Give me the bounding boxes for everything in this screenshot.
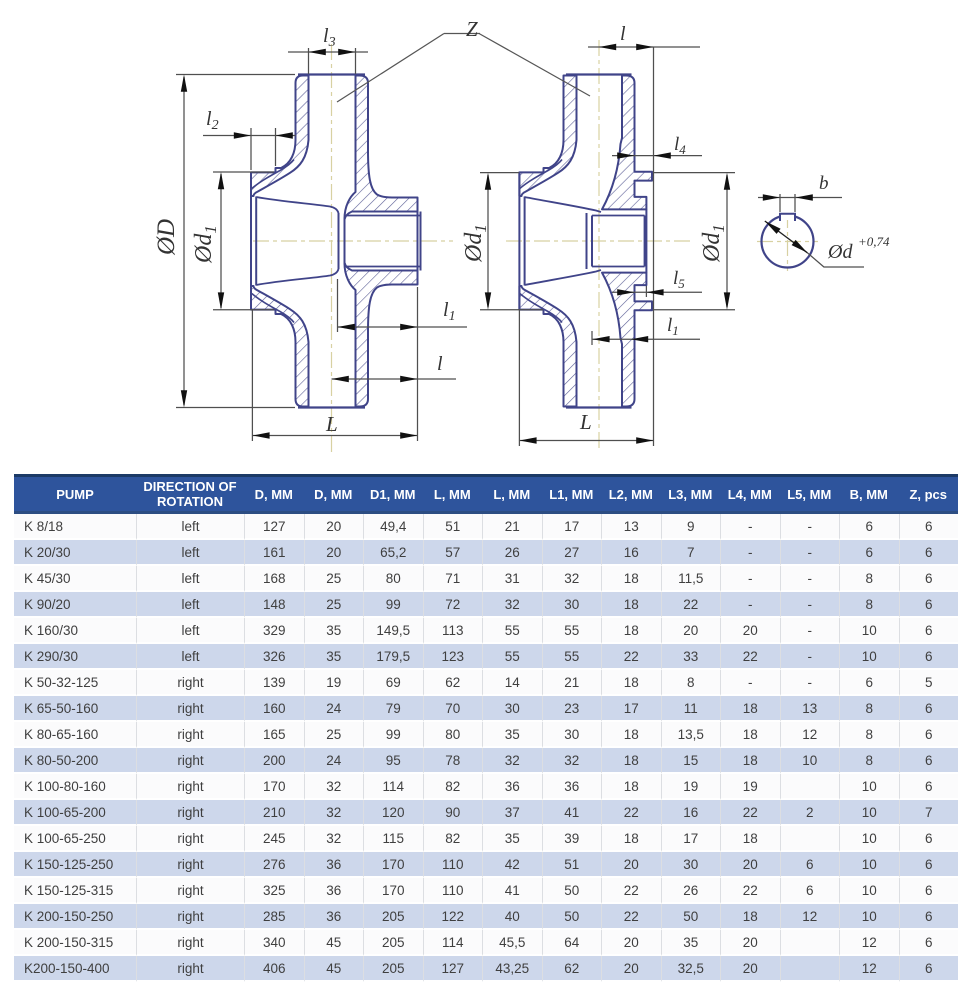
svg-text:L: L — [579, 410, 592, 434]
svg-text:l: l — [620, 23, 626, 45]
svg-text:l4: l4 — [674, 134, 686, 157]
svg-text:l1: l1 — [667, 315, 679, 338]
svg-text:Ød1: Ød1 — [461, 224, 490, 263]
svg-text:b: b — [819, 173, 829, 194]
svg-text:L: L — [325, 412, 338, 436]
svg-text:l5: l5 — [673, 268, 685, 291]
svg-text:l1: l1 — [443, 299, 456, 324]
svg-text:l: l — [437, 353, 443, 375]
svg-text:Ød: Ød — [827, 241, 853, 263]
svg-text:l3: l3 — [323, 25, 336, 50]
svg-text:+0,74: +0,74 — [858, 234, 890, 249]
svg-text:ØD: ØD — [153, 219, 180, 256]
svg-text:Ød1: Ød1 — [191, 225, 220, 264]
svg-text:l2: l2 — [206, 108, 219, 133]
svg-text:Ød1: Ød1 — [699, 224, 728, 263]
svg-text:Z: Z — [466, 17, 478, 41]
